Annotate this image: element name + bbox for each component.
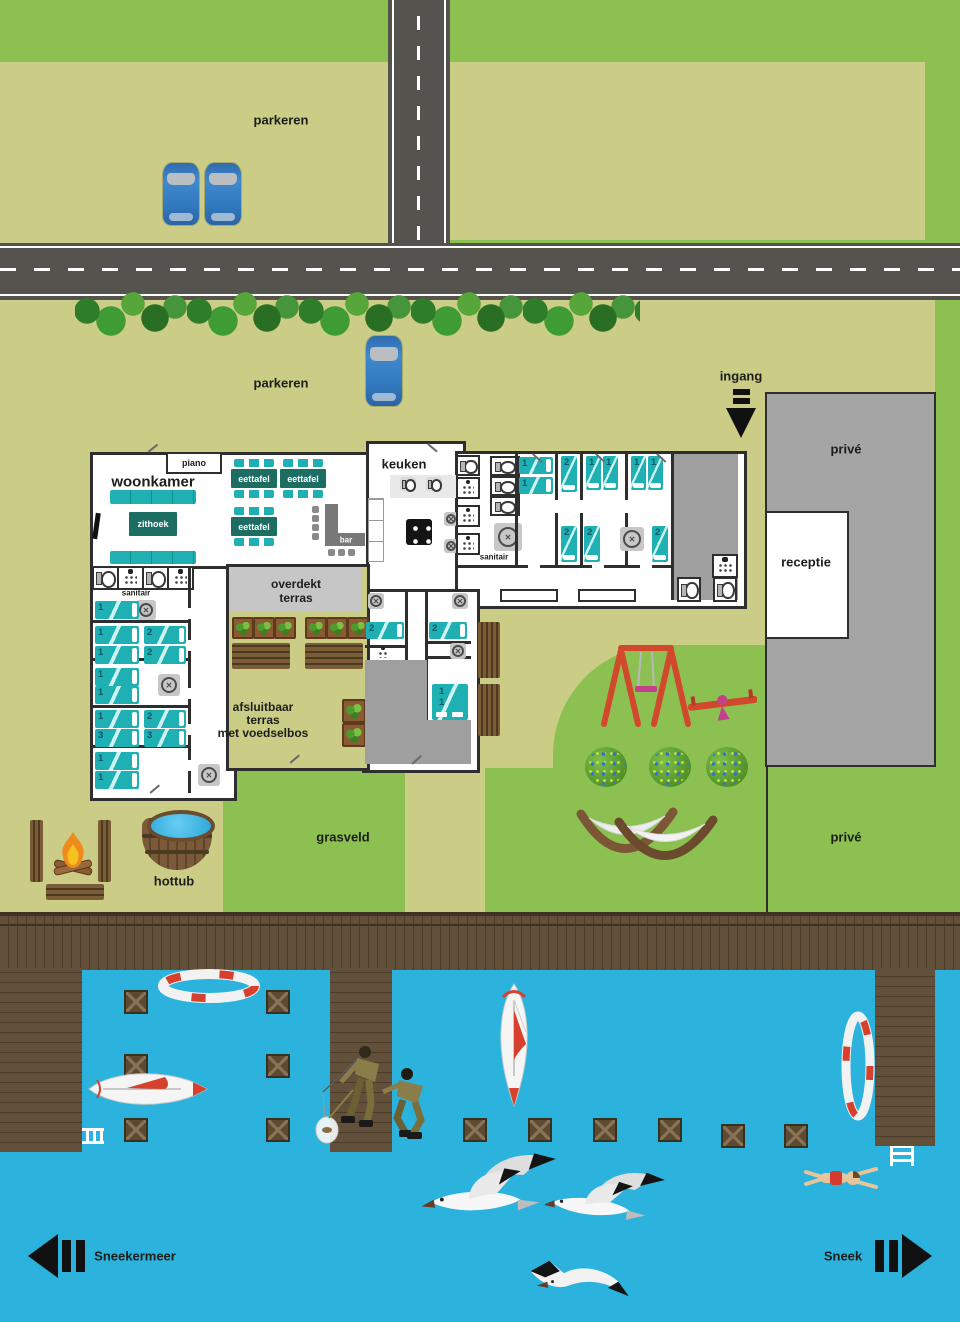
sailboat (488, 980, 540, 1110)
hammocks (573, 792, 723, 870)
bar-stool (312, 533, 319, 540)
bench (46, 884, 104, 900)
dining-chairs (234, 507, 274, 515)
bed-number: 1 (634, 457, 639, 468)
bed: 1 (95, 710, 139, 728)
sitting-area: zithoek (129, 512, 177, 536)
wall (93, 705, 188, 708)
fan-icon (158, 674, 180, 696)
living-room-label: woonkamer (111, 474, 194, 491)
dining-chairs (283, 459, 323, 467)
private-boundary-line (766, 763, 768, 912)
bar-label: bar (340, 536, 352, 545)
dining-table-label: eettafel (238, 474, 270, 484)
toilet-icon (677, 577, 701, 602)
hottub-label: hottub (154, 874, 194, 889)
boardwalk-edge (0, 912, 960, 916)
road-center-dashes (417, 0, 420, 240)
hottub-band (145, 850, 209, 854)
mooring-post (658, 1118, 682, 1142)
bar-stool (328, 549, 335, 556)
shower-icon (456, 477, 480, 499)
door-opening (625, 500, 628, 513)
closable-terrace-label: afsluitbaar (233, 700, 294, 714)
bench (305, 643, 363, 669)
road-edge-line (392, 0, 394, 243)
bench (478, 622, 500, 678)
bar-stool (312, 506, 319, 513)
door-opening (555, 500, 558, 513)
bed-number: 1 (98, 602, 103, 613)
bed-number: 1 (98, 627, 103, 638)
entrance-label: ingang (720, 369, 763, 384)
road-center-dashes (0, 268, 960, 271)
bed-number: 2 (655, 527, 660, 538)
mooring-post (266, 990, 290, 1014)
door-opening (188, 608, 191, 619)
covered-terrace-label: terras (279, 591, 312, 605)
bed-number: 1 (651, 457, 656, 468)
door-opening (640, 565, 652, 568)
bed-number: 1 (98, 687, 103, 698)
bench (478, 684, 500, 736)
toilet-icon (456, 455, 480, 476)
parking-mid-label: parkeren (254, 376, 309, 391)
shower-icon (456, 505, 480, 527)
planter-box (342, 723, 366, 747)
parked-car (205, 163, 241, 225)
bed-number: 2 (147, 627, 152, 638)
bar-counter (325, 504, 338, 535)
shower-icon (456, 533, 480, 555)
bed-number: 2 (564, 527, 569, 538)
bed-number: 1 1 (439, 686, 468, 708)
grass-label: grasveld (316, 830, 369, 845)
mooring-post (124, 1118, 148, 1142)
toilet-icon (713, 577, 737, 602)
bed: 1 (95, 752, 139, 770)
bed-number: 2 (147, 711, 152, 722)
door-opening (188, 688, 191, 699)
mooring-post (593, 1118, 617, 1142)
arrow-right-icon (902, 1234, 932, 1278)
life-ring (155, 968, 263, 1004)
bed-number: 1 (98, 669, 103, 680)
planter-box (326, 617, 348, 639)
bar-stool (312, 515, 319, 522)
dining-table-label: eettafel (287, 474, 319, 484)
dock-left (0, 968, 82, 1152)
fan-icon (450, 643, 466, 659)
bed: 3 (144, 729, 186, 747)
fan-icon (136, 600, 156, 620)
bed: 1 (95, 601, 139, 619)
bed: 3 (95, 729, 139, 747)
bed: 2 (366, 622, 404, 639)
sofa (110, 551, 196, 564)
mooring-post (528, 1118, 552, 1142)
bed-number: 1 (522, 478, 527, 489)
covered-terrace-label: overdekt (271, 577, 321, 591)
parked-car (366, 336, 402, 406)
toilet-icon (92, 566, 119, 590)
bed: 2 (144, 710, 186, 728)
seagull (545, 1162, 675, 1247)
dining-table: eettafel (231, 469, 277, 488)
fan-icon (620, 527, 644, 551)
bed: 1 (519, 457, 553, 474)
shower-icon (374, 646, 392, 660)
bed-number: 2 (369, 623, 374, 634)
planter-box (342, 699, 366, 723)
bed: 2 (561, 456, 577, 492)
mooring-post (721, 1124, 745, 1148)
bench (30, 820, 43, 882)
parking-top-label: parkeren (254, 113, 309, 128)
bed-number: 1 (98, 647, 103, 658)
bar-stool (312, 524, 319, 531)
bed: 2 (652, 526, 668, 562)
fan-icon (198, 764, 220, 786)
door-opening (188, 640, 191, 651)
bed: 1 (95, 646, 139, 664)
door-opening (528, 565, 540, 568)
fishermen (295, 1030, 465, 1150)
bed-number: 1 (98, 772, 103, 783)
bed: 1 (95, 626, 139, 644)
dining-table: eettafel (231, 517, 277, 536)
planter-box (253, 617, 275, 639)
shower-icon (117, 566, 144, 590)
life-ring (840, 1010, 876, 1122)
planter-box (305, 617, 327, 639)
bed: 2 (584, 526, 600, 562)
sanitary-label-east: sanitair (480, 553, 508, 562)
road-edge-line (444, 0, 446, 243)
mooring-post (784, 1124, 808, 1148)
arrow-right-icon (875, 1240, 884, 1272)
town-label: Sneek (824, 1249, 862, 1264)
door-opening (592, 565, 604, 568)
reception-room (765, 511, 849, 639)
bed-number: 2 (432, 623, 437, 634)
boardwalk-beam (0, 924, 960, 926)
mooring-post (266, 1054, 290, 1078)
toilet-icon (142, 566, 169, 590)
boardwalk (0, 912, 960, 970)
hedge (75, 291, 640, 337)
arrow-left-icon (76, 1240, 85, 1272)
bed: 1 (95, 668, 139, 686)
entry-porch (500, 589, 558, 602)
parking-lot-top-right (450, 62, 925, 240)
bed: 1 (95, 686, 139, 704)
bed: 1 (648, 456, 663, 490)
mooring-post (463, 1118, 487, 1142)
dining-chairs (234, 538, 274, 546)
piano-label: piano (182, 458, 206, 468)
door-opening (188, 724, 191, 735)
site-map: parkeren parkeren ingang privé receptie … (0, 0, 960, 1322)
swim-ladder (82, 1128, 104, 1144)
bed-number: 1 (98, 753, 103, 764)
playground (592, 638, 757, 730)
reception-label: receptie (781, 555, 831, 570)
path-to-dock (405, 768, 485, 912)
planter-box (274, 617, 296, 639)
private-lower-label: privé (830, 830, 861, 845)
swim-ladder (890, 1146, 914, 1166)
lake-label: Sneekermeer (94, 1249, 176, 1264)
kitchen-label: keuken (382, 457, 427, 472)
campfire (50, 830, 96, 878)
arrow-left-icon (62, 1240, 71, 1272)
door-opening (188, 760, 191, 771)
bed: 1 (631, 456, 646, 490)
bed-number: 2 (147, 647, 152, 658)
bed-number: 1 (589, 457, 594, 468)
shower-icon (712, 554, 738, 578)
bar-stool (348, 549, 355, 556)
parked-car (163, 163, 199, 225)
dining-chairs (234, 490, 274, 498)
closable-terrace-label: met voedselbos (218, 726, 309, 740)
door-opening (580, 500, 583, 513)
bench (98, 820, 111, 882)
dining-table-label: eettafel (238, 522, 270, 532)
arrow-left-icon (28, 1234, 58, 1278)
sink-icon (426, 477, 442, 491)
bed: 2 (561, 526, 577, 562)
wall (93, 620, 188, 623)
flowering-bush (706, 747, 748, 787)
bed-number: 1 (98, 711, 103, 722)
entrance-arrow-icon (726, 408, 756, 438)
bar-stool (338, 549, 345, 556)
flowering-bush (585, 747, 627, 787)
mooring-post (266, 1118, 290, 1142)
bed: 2 (144, 626, 186, 644)
bed: 1 (519, 477, 553, 494)
bench (232, 643, 290, 669)
bed-number: 3 (147, 730, 152, 741)
hottub-water (147, 810, 215, 842)
entry-porch (578, 589, 636, 602)
pier-right (875, 968, 935, 1146)
dining-chairs (283, 490, 323, 498)
closable-terrace-label: terras (246, 713, 279, 727)
bed: 1 (95, 771, 139, 789)
sanitary-label-west: sanitair (122, 589, 150, 598)
dining-table: eettafel (280, 469, 326, 488)
sailboat (85, 1058, 210, 1120)
bed-number: 1 (606, 457, 611, 468)
piano: piano (166, 452, 222, 474)
bed-number: 1 (522, 458, 527, 469)
dining-chairs (234, 459, 274, 467)
double-bed: 1 1 (432, 684, 468, 720)
fan-icon (368, 593, 384, 609)
fan-icon (452, 593, 468, 609)
wall (188, 566, 191, 793)
planter-box (232, 617, 254, 639)
sofa (110, 490, 196, 504)
flowering-bush (649, 747, 691, 787)
bed-number: 3 (98, 730, 103, 741)
mooring-post (124, 990, 148, 1014)
seagull (518, 1250, 633, 1308)
bed-number: 2 (564, 457, 569, 468)
sitting-area-label: zithoek (137, 519, 168, 529)
bed: 2 (144, 646, 186, 664)
arrow-right-icon (889, 1240, 898, 1272)
stove-icon (406, 519, 432, 545)
private-upper-label: privé (830, 442, 861, 457)
bed-number: 2 (587, 527, 592, 538)
bed: 1 (586, 456, 601, 490)
sink-icon (400, 477, 416, 491)
bed: 2 (429, 622, 467, 639)
road-edge-line (0, 246, 960, 248)
swimmer (800, 1158, 882, 1198)
wall (515, 454, 518, 565)
entrance-arrow-icon (733, 398, 750, 404)
wall (405, 591, 408, 662)
entrance-arrow-icon (733, 389, 750, 395)
kitchen-counter (368, 498, 384, 562)
